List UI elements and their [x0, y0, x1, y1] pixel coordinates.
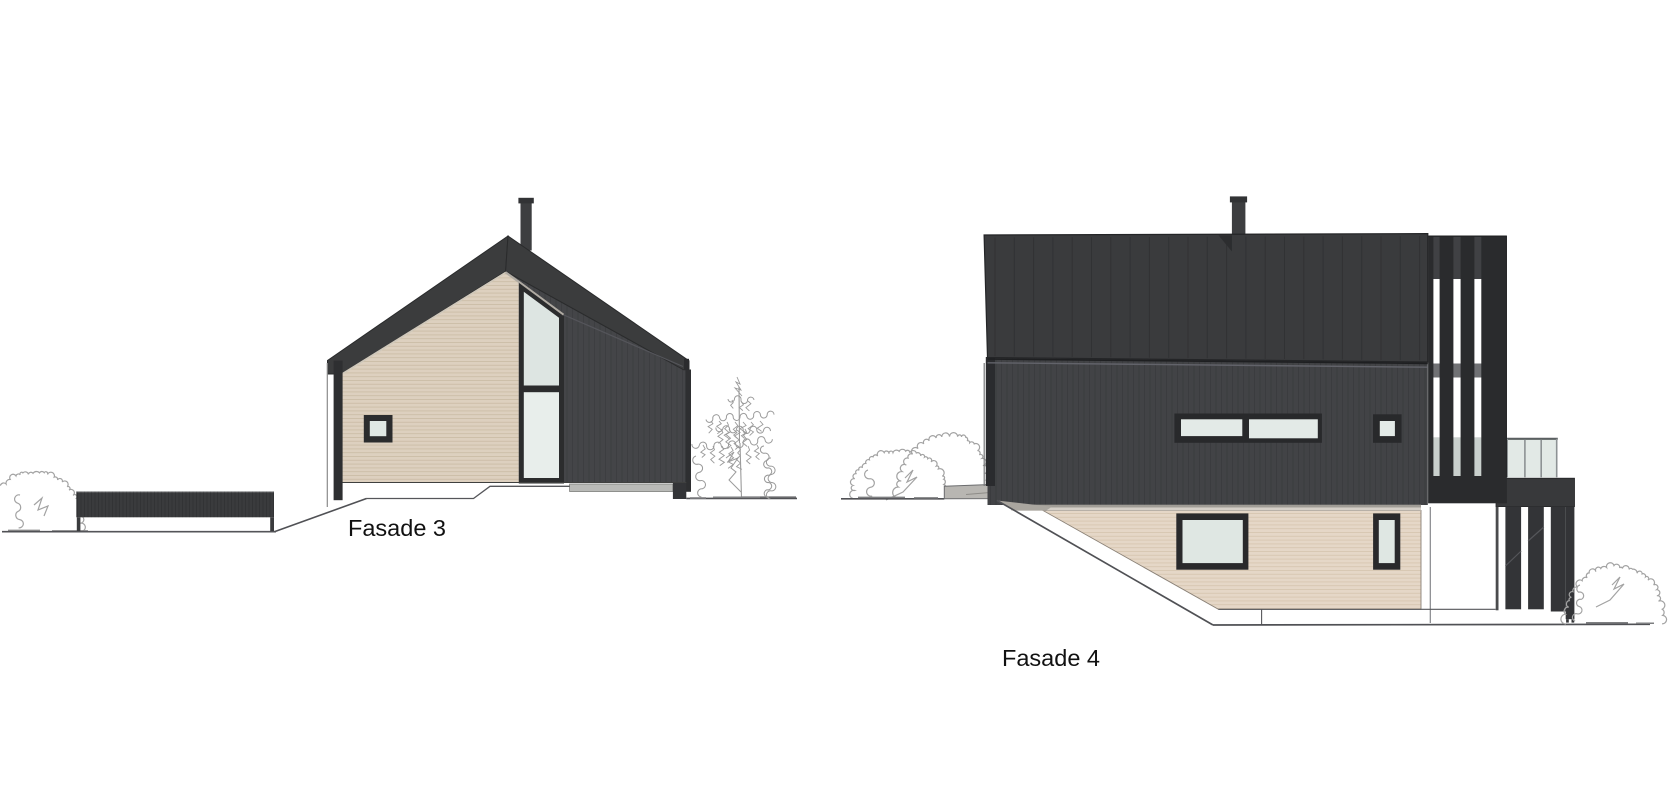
svg-text:Fasade 3: Fasade 3: [348, 515, 446, 541]
svg-text:Fasade 4: Fasade 4: [1002, 645, 1100, 671]
